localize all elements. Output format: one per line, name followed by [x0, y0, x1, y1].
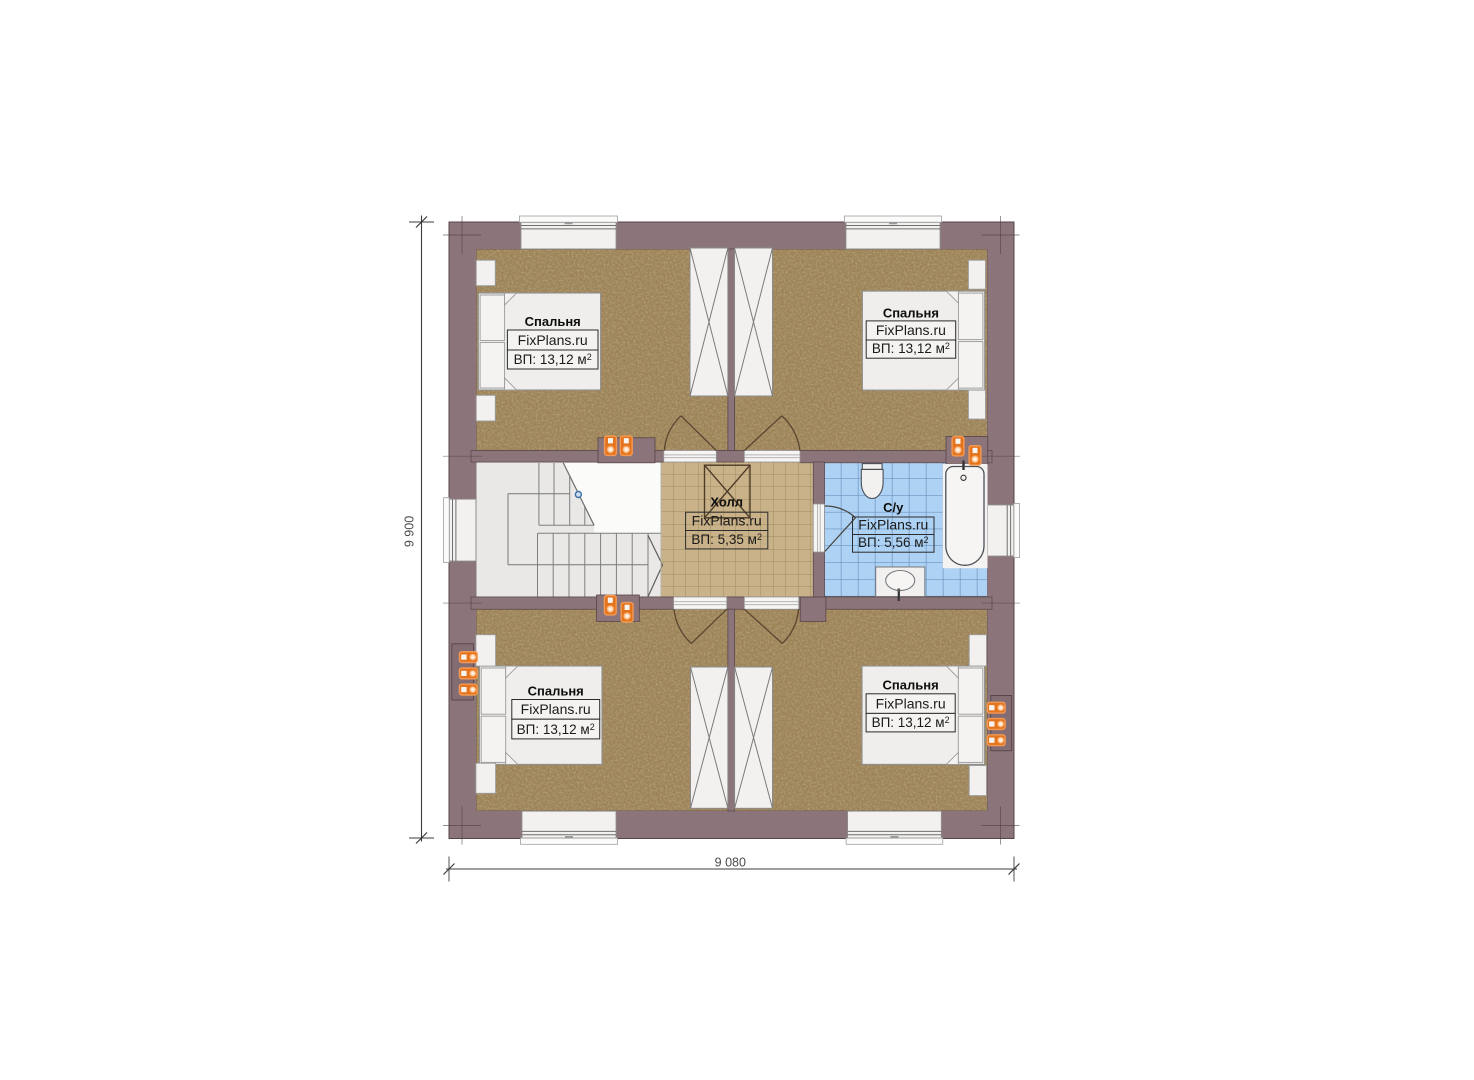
svg-text:ВП: 5,56 м2: ВП: 5,56 м2: [858, 535, 929, 550]
svg-text:FixPlans.ru: FixPlans.ru: [521, 701, 591, 717]
svg-text:Спальня: Спальня: [528, 683, 584, 698]
svg-text:FixPlans.ru: FixPlans.ru: [876, 695, 946, 711]
svg-text:Спальня: Спальня: [883, 678, 939, 693]
svg-text:9 080: 9 080: [715, 856, 746, 870]
svg-text:ВП: 13,12 м2: ВП: 13,12 м2: [872, 715, 950, 730]
svg-text:С/у: С/у: [883, 500, 904, 515]
svg-text:Спальня: Спальня: [525, 314, 581, 329]
svg-text:Спальня: Спальня: [883, 306, 939, 321]
svg-text:FixPlans.ru: FixPlans.ru: [858, 517, 928, 533]
svg-text:ВП: 5,35 м2: ВП: 5,35 м2: [691, 532, 762, 547]
svg-text:ВП: 13,12 м2: ВП: 13,12 м2: [514, 352, 592, 367]
svg-text:FixPlans.ru: FixPlans.ru: [518, 332, 588, 348]
svg-text:FixPlans.ru: FixPlans.ru: [692, 513, 762, 529]
svg-text:9 900: 9 900: [403, 516, 417, 547]
svg-text:ВП: 13,12 м2: ВП: 13,12 м2: [517, 722, 595, 737]
svg-text:ВП: 13,12 м2: ВП: 13,12 м2: [872, 341, 950, 356]
svg-text:Холл: Холл: [710, 495, 743, 510]
svg-text:FixPlans.ru: FixPlans.ru: [876, 322, 946, 338]
